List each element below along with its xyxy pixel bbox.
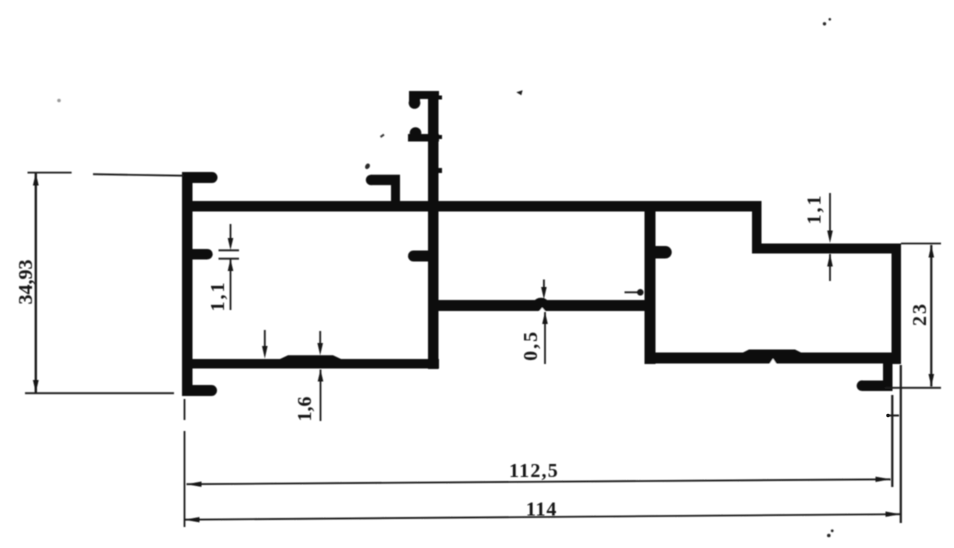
svg-text:23: 23 xyxy=(909,302,931,326)
svg-text:114: 114 xyxy=(526,499,557,521)
svg-text:1,1: 1,1 xyxy=(804,194,826,225)
svg-text:34,93: 34,93 xyxy=(15,260,37,305)
svg-text:1,1: 1,1 xyxy=(207,281,229,312)
svg-text:0,5: 0,5 xyxy=(520,330,542,361)
svg-text:112,5: 112,5 xyxy=(509,460,559,482)
svg-text:1,6: 1,6 xyxy=(294,397,316,422)
